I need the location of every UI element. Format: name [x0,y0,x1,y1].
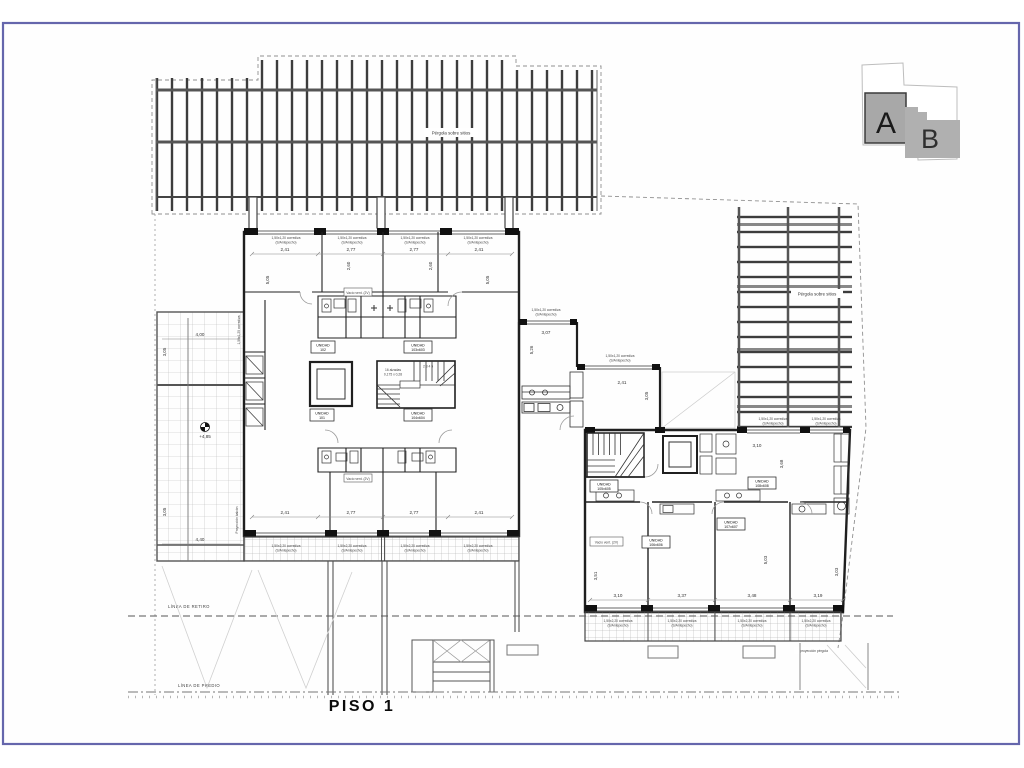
dim: 2,77 [410,510,419,515]
unit-word: UNIDAD [316,343,330,347]
window-label-left: 1,50x1,20 corrediza [237,315,241,344]
level-value: +4,85 [199,434,211,439]
dim-center-1: 2,60 [346,261,351,270]
vent-label-a-top: Vacío vent. (2V) [346,291,369,295]
unit-number: 105x605 [597,487,610,491]
balcony-label: (S/Antepecho) [741,623,762,627]
dim-bv1: 5,26 [529,345,534,354]
pergola-projection-label: proyección pérgola [800,649,828,653]
unit-word: UNIDAD [411,343,425,347]
balcony-label: (S/Antepecho) [607,623,628,627]
dim: 3,19 [814,593,823,598]
terrace-dim-v2: 3,05 [162,507,167,516]
building-b-windows-top [747,428,843,434]
floor-plan-page: Pérgola sobre sitios Pérgola sobre sitio… [0,0,1024,768]
pergola-a-slats [156,60,597,211]
unit-number: 102 [320,348,326,352]
proyeccion-balcon-label: Proyección balcón [235,506,239,533]
pergola-b: Pérgola sobre sitios [737,207,852,428]
stair-note-1: 16 alzadas [385,368,401,372]
stair-step-numbers: 2 3 4 5 [423,365,433,369]
window-label: (S/Antepecho) [535,312,556,316]
unit-word: UNIDAD [597,482,611,486]
unit-number: 108x608 [755,484,768,488]
unit-word: UNIDAD [315,411,329,415]
dim-b3: 3,10 [753,443,762,448]
keyplan-label-a: A [876,107,896,140]
level-marker [201,423,210,432]
window-label: (S/Antepecho) [467,240,488,244]
dim: 3,10 [614,593,623,598]
dim: 2,41 [475,247,484,252]
unit-word: UNIDAD [649,538,663,542]
dim-b2: 2,41 [618,380,627,385]
unit-number: 103x603 [411,348,424,352]
vent-label-a-bottom: Vacío vent. (2V) [346,477,369,481]
pergola-b-label: Pérgola sobre sitios [798,292,837,297]
terrace-dim-top: 4,00 [196,332,205,337]
unit-word: UNIDAD [411,411,425,415]
unit-number: 104x604 [411,416,424,420]
dim-side-left: 5,05 [265,275,270,284]
window-label: (S/Antepecho) [275,240,296,244]
balcony-label: (S/Antepecho) [404,548,425,552]
balcony-label: (S/Antepecho) [467,548,488,552]
unit-number: 101 [319,416,325,420]
dim: 2,77 [347,247,356,252]
linea-predio-label: LÍNEA DE PREDIO [178,683,220,688]
dim-center-2: 2,60 [428,261,433,270]
pergola-a: Pérgola sobre sitios [156,60,597,232]
balcony-label: (S/Antepecho) [671,623,692,627]
window-label: (S/Antepecho) [341,240,362,244]
floor-plan-drawing: Pérgola sobre sitios Pérgola sobre sitio… [0,0,1024,768]
stair-note-2: 0,175 x 0,28 [384,373,402,377]
dim-bv5: 3,03 [834,567,839,576]
dim: 2,41 [281,510,290,515]
pergola-b-slats [737,207,852,428]
dim-bv4: 3,51 [593,571,598,580]
dim-bv2: 3,05 [644,391,649,400]
window-label: (S/Antepecho) [404,240,425,244]
dim-b1: 3,07 [542,330,551,335]
dim-bv3: 5,03 [763,555,768,564]
dim: 2,77 [410,247,419,252]
keyplan-label-b: B [921,124,939,154]
balcony-label: (S/Antepecho) [275,548,296,552]
dim: 2,41 [475,510,484,515]
unit-word: UNIDAD [755,479,769,483]
dim: 3,37 [678,593,687,598]
window-label: (S/Antepecho) [815,421,836,425]
balcony-label: (S/Antepecho) [341,548,362,552]
dim: 2,77 [347,510,356,515]
pergola-a-label: Pérgola sobre sitios [432,131,471,136]
balcony-label: (S/Antepecho) [805,623,826,627]
floor-title: PISO 1 [329,698,396,715]
vent-label-b: Vacío vent. (2V) [595,540,618,544]
dim: 2,41 [281,247,290,252]
unit-number: 107x607 [724,525,737,529]
linea-retiro-label: LÍNEA DE RETIRO [168,604,210,609]
dim-side-right: 5,05 [485,275,490,284]
unit-number: 106x606 [649,543,662,547]
window-label: (S/Antepecho) [609,358,630,362]
dim-bv6: 3,68 [779,459,784,468]
unit-word: UNIDAD [724,520,738,524]
terrace-dim-bottom: 4,40 [196,537,205,542]
terrace-dim-v1: 3,05 [162,347,167,356]
window-label: (S/Antepecho) [762,421,783,425]
terrace: 4,00 4,40 3,05 3,05 +4,85 Proyección bal… [157,312,244,561]
building-a-balcony: 1,50x2,20 corrediza (S/Antepecho) 1,50x2… [244,537,519,561]
dim: 3,48 [748,593,757,598]
